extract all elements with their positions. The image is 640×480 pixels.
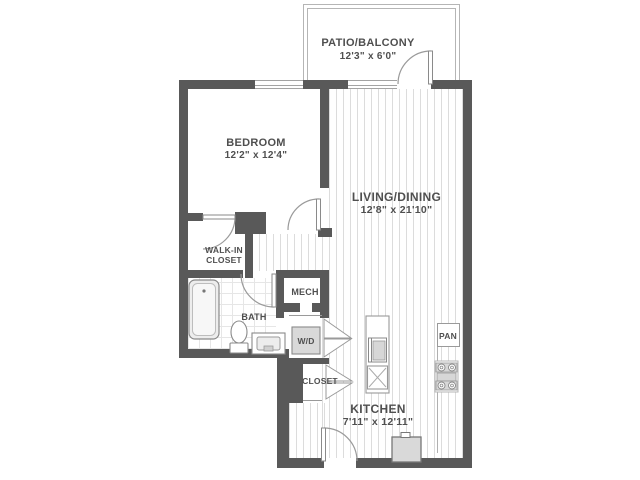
bath-label: BATH [224, 312, 284, 322]
entry-door-leaf [322, 428, 326, 461]
bedroom-door-arc [288, 199, 319, 230]
bottom-wall-appliance [392, 437, 421, 462]
patio-door-leaf [429, 51, 433, 84]
wd-bifold-door-top [324, 319, 351, 338]
island-dishwasher-door [373, 341, 385, 360]
walkin-closet-door-leaf [203, 215, 235, 219]
burner-1 [438, 364, 445, 371]
entry-door-arc [324, 428, 357, 461]
wd-label: W/D [291, 336, 321, 346]
toilet-tank [230, 343, 248, 353]
patio-label: PATIO/BALCONY [308, 37, 428, 49]
wd-bifold-door-bottom [324, 339, 351, 357]
living-dining-label: LIVING/DINING [336, 190, 457, 204]
range-center [437, 373, 456, 381]
burner-3 [438, 382, 445, 389]
toilet-bowl [231, 321, 247, 343]
bedroom-label: BEDROOM [196, 137, 316, 149]
pantry-label: PAN [433, 331, 463, 341]
patio-dims: 12'3" x 6'0" [308, 51, 428, 62]
mech-label: MECH [280, 287, 330, 297]
bottom-wall-appliance-knob [401, 433, 410, 438]
kitchen-dims: 7'11" x 12'11" [318, 416, 438, 428]
bath-sink-faucet [264, 346, 273, 351]
burner-2 [449, 364, 456, 371]
closet-label: CLOSET [295, 376, 345, 386]
bathtub-drain [202, 289, 205, 292]
living-dining-dims: 12'8" x 21'10" [336, 204, 457, 216]
kitchen-label: KITCHEN [318, 402, 438, 416]
bath-door-leaf [272, 274, 276, 307]
walkin-closet-label-line1: WALK-IN [184, 245, 264, 255]
walkin-closet-label-line2: CLOSET [184, 255, 264, 265]
bedroom-dims: 12'2" x 12'4" [196, 150, 316, 161]
bath-door-arc [241, 274, 274, 307]
floor-plan: PATIO/BALCONY 12'3" x 6'0" BEDROOM 12'2"… [0, 0, 640, 480]
bedroom-door-leaf [317, 199, 321, 230]
burner-4 [449, 382, 456, 389]
